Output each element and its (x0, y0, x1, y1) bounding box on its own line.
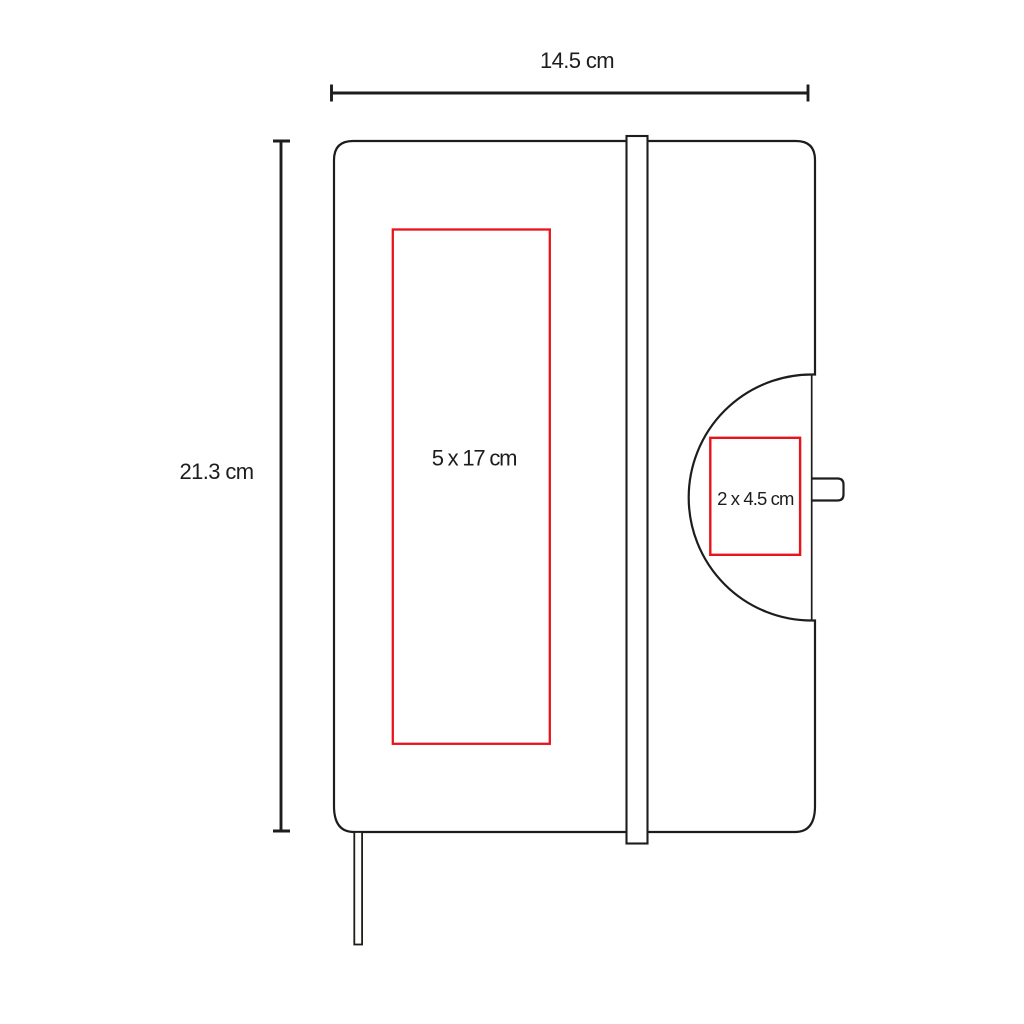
svg-text:21.3 cm: 21.3 cm (179, 459, 253, 484)
svg-text:14.5 cm: 14.5 cm (540, 48, 614, 73)
svg-text:2 x 4.5 cm: 2 x 4.5 cm (717, 488, 794, 509)
svg-text:5 x 17 cm: 5 x 17 cm (432, 446, 517, 471)
